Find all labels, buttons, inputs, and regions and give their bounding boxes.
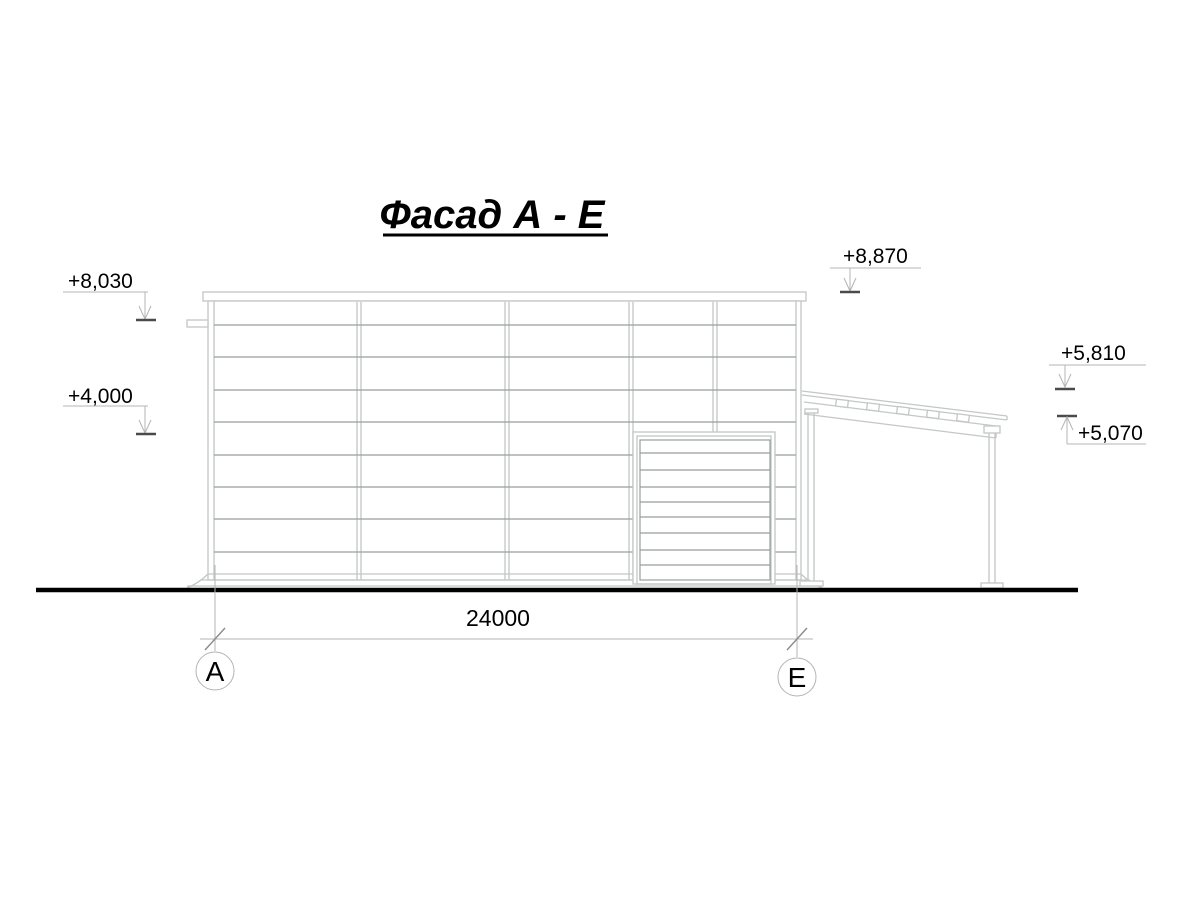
drawing-title: Фасад А - Е bbox=[380, 193, 606, 237]
elevation-value: +8,870 bbox=[843, 245, 908, 268]
dimension-value: 24000 bbox=[466, 605, 530, 631]
elevation-value: +8,030 bbox=[68, 270, 133, 293]
canopy-column-base-left bbox=[800, 581, 823, 586]
elevation-mark-parapet-right: +8,870 bbox=[830, 245, 921, 292]
elevation-value: +4,000 bbox=[68, 385, 133, 408]
elevation-value: +5,810 bbox=[1061, 342, 1126, 365]
door-outer-frame bbox=[633, 432, 775, 584]
axis-label-e: Е bbox=[788, 662, 807, 693]
drawing-title-block: Фасад А - Е bbox=[380, 193, 608, 237]
side-canopy bbox=[800, 391, 1007, 588]
elevation-mark-mid-left: +4,000 bbox=[63, 385, 156, 434]
canopy-column-capital-right bbox=[984, 426, 1000, 433]
elevation-mark-canopy-low: +5,070 bbox=[1057, 416, 1146, 445]
overhead-door bbox=[633, 432, 775, 584]
axis-bubble-a: А bbox=[196, 652, 234, 690]
canopy-column-capital-left bbox=[805, 409, 818, 413]
canopy-column-base-right bbox=[981, 583, 1003, 588]
parapet-cap bbox=[203, 292, 806, 301]
axis-bubble-e: Е bbox=[778, 658, 816, 696]
canopy-purlin bbox=[927, 410, 940, 418]
canopy-purlin bbox=[957, 414, 970, 422]
elevation-mark-parapet-left: +8,030 bbox=[63, 270, 156, 320]
drawing-sheet: Фасад А - Е bbox=[0, 0, 1200, 900]
parapet-scupper bbox=[187, 320, 208, 327]
dimension-string: 24000 А Е bbox=[196, 565, 816, 696]
facade-elevation-drawing: Фасад А - Е bbox=[0, 0, 1200, 900]
canopy-purlin bbox=[867, 403, 880, 411]
canopy-purlin bbox=[897, 406, 910, 414]
elevation-mark-canopy-high: +5,810 bbox=[1049, 342, 1146, 389]
canopy-purlin bbox=[836, 399, 849, 407]
axis-label-a: А bbox=[206, 656, 225, 687]
elevation-value: +5,070 bbox=[1078, 422, 1143, 445]
